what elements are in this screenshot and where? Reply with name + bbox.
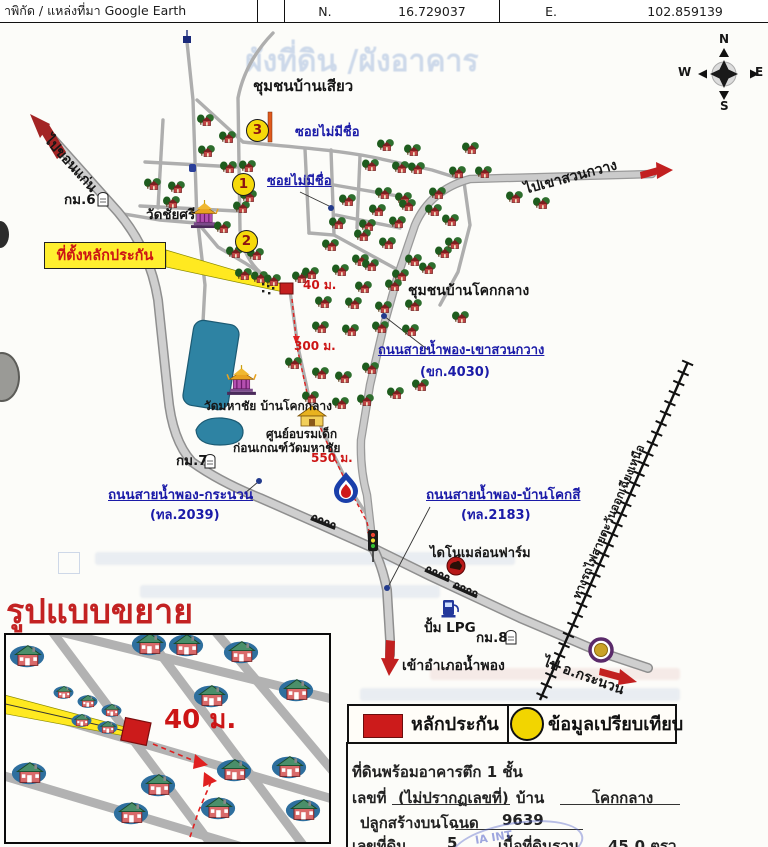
house-icon (412, 379, 429, 390)
underline (560, 804, 680, 805)
house-icon (201, 798, 235, 820)
road-2039-label: ถนนสายน้ำพอง-กระนวน (108, 488, 253, 502)
road-2039-number: (ทล.2039) (150, 509, 220, 523)
house-icon (332, 397, 349, 408)
house-icon (362, 259, 379, 270)
header-e-cell: E. 102.859139 (500, 0, 768, 22)
soi-unnamed-2-label: ซอยไม่มีชื่อ (267, 175, 332, 189)
header-source-label: าพิกัด / แหล่งที่มา Google Earth (4, 1, 186, 21)
house-icon (335, 371, 352, 382)
house-icon (442, 214, 459, 225)
header-source-cell: าพิกัด / แหล่งที่มา Google Earth (0, 0, 258, 22)
property-village-label: บ้าน (516, 786, 544, 810)
distance-550m-label: 550 ม. (311, 452, 353, 465)
child-center-label-1: ศูนย์อบรมเด็ก (266, 428, 337, 441)
house-icon (54, 686, 74, 699)
railway (540, 362, 688, 700)
compass-e-label: E (755, 66, 763, 79)
house-icon (408, 162, 425, 173)
soi-unnamed-1-label: ซอยไม่มีชื่อ (295, 126, 360, 140)
road-2183-number: (ทล.2183) (461, 509, 531, 523)
house-icon (220, 161, 237, 172)
house-icon (239, 160, 256, 171)
house-icon (102, 704, 122, 717)
banner-callout-wedge (166, 250, 288, 293)
property-deed-label: ปลูกสร้างบนโฉนด (360, 811, 479, 835)
underline (392, 804, 510, 805)
house-icon (10, 646, 44, 668)
house-icon (462, 142, 479, 153)
house-icon (224, 642, 258, 664)
house-icon (419, 262, 436, 273)
comparison-marker-1: 1 (232, 173, 255, 196)
house-icon (141, 775, 175, 797)
collateral-location-banner: ที่ตั้งหลักประกัน (44, 242, 166, 269)
house-icon (452, 311, 469, 322)
inset-title: รูปแบบขยาย (6, 594, 193, 630)
water-jar-icon (189, 164, 196, 172)
lpg-pump-icon (442, 600, 459, 618)
house-icon (312, 321, 329, 332)
inset-roads (6, 635, 331, 844)
km-marker-icon (98, 193, 108, 207)
house-icon (379, 237, 396, 248)
property-land-label: เลขที่ดิน (352, 834, 406, 847)
house-icon (168, 181, 185, 192)
road-4030-label: ถนนสายน้ำพอง-เขาสวนกวาง (378, 344, 544, 358)
house-icon (322, 239, 339, 250)
compass-s-label: S (720, 100, 729, 113)
wat-mahachai-label: วัดมหาชัย บ้านโคกกลาง (204, 400, 332, 413)
road-2183-label: ถนนสายน้ำพอง-บ้านโคกสี (426, 488, 580, 502)
wat-chai-si-label: วัดชัยศรี (146, 208, 195, 222)
house-icon (315, 296, 332, 307)
emblem-icon (590, 639, 612, 661)
house-icon (312, 367, 329, 378)
legend-comparison-swatch (510, 707, 544, 741)
coordinates-header: าพิกัด / แหล่งที่มา Google Earth N. 16.7… (0, 0, 768, 23)
gas-station-icon (334, 472, 358, 503)
header-e-label: E. (545, 4, 557, 19)
distance-300m-label: 300 ม. (294, 340, 336, 353)
house-icon (219, 131, 236, 142)
compass-n-label: N (719, 33, 729, 46)
legend-collateral-swatch (363, 714, 403, 738)
house-icon (114, 803, 148, 825)
house-icon (362, 159, 379, 170)
house-icon (377, 139, 394, 150)
km8-label: กม.8 (476, 631, 508, 645)
property-type: ที่ดินพร้อมอาคารตึก 1 ชั้น (352, 760, 523, 784)
house-icon (387, 387, 404, 398)
house-icon (169, 635, 203, 656)
house-icon (375, 187, 392, 198)
house-icon (217, 760, 251, 782)
house-icon (98, 721, 118, 734)
header-n-label: N. (318, 4, 331, 19)
compass-w-label: W (678, 66, 691, 79)
inset-enlarged-map: 40 ม. (4, 633, 331, 844)
header-e-value: 102.859139 (647, 4, 723, 19)
property-village-value: โคกกลาง (592, 786, 653, 810)
arrow-nam-phong (381, 658, 399, 676)
km7-label: กม.7 (176, 454, 208, 468)
house-icon (272, 757, 306, 779)
arrow-nam-phong-shaft (385, 640, 395, 660)
km6-label: กม.6 (64, 193, 96, 207)
house-icon (286, 800, 320, 822)
legend-comparison-label: ข้อมูลเปรียบเทียบ (548, 715, 683, 734)
house-icon (332, 264, 349, 275)
lpg-label: ปั้ม LPG (424, 621, 476, 635)
property-area-value: 45.0 ตรว. (608, 834, 682, 847)
house-icon (285, 357, 302, 368)
inset-distance-40m-label: 40 ม. (164, 707, 236, 735)
house-icon (72, 714, 92, 727)
property-no-value: (ไม่ปรากฏเลขที่) (398, 786, 509, 810)
header-spacer-cell (258, 0, 285, 22)
house-icon (405, 254, 422, 265)
house-icon (197, 114, 214, 125)
house-icon (405, 299, 422, 310)
house-icon (533, 197, 550, 208)
inset-collateral-square (121, 718, 151, 746)
house-icon (342, 324, 359, 335)
house-icon (404, 144, 421, 155)
house-icon (194, 686, 228, 708)
inset-canvas (6, 635, 331, 844)
scanned-map-page: ผังที่ดิน /ผังอาคาร (0, 0, 768, 847)
arrow-suan-kwang (656, 162, 673, 179)
road-4030-number: (ขก.4030) (420, 366, 490, 380)
comparison-marker-3: 3 (246, 119, 269, 142)
house-icon (369, 204, 386, 215)
water-tank-icon (183, 30, 191, 43)
dino-farm-label: ไดโนเมล่อนฟาร์ม (430, 547, 531, 561)
direction-nam-phong-label: เข้าอำเภอน้ำพอง (402, 659, 505, 674)
house-icon (198, 145, 215, 156)
house-icon (12, 763, 46, 785)
comparison-marker-2: 2 (235, 230, 258, 253)
house-icon (78, 695, 98, 708)
house-icon (435, 246, 452, 257)
house-icon (329, 217, 346, 228)
house-icon (425, 204, 442, 215)
house-icon (345, 297, 362, 308)
legend-divider (507, 706, 509, 742)
legend-collateral-label: หลักประกัน (411, 715, 499, 734)
house-icon (402, 324, 419, 335)
distance-40m-label: 40 ม. (303, 279, 336, 292)
house-icon (355, 281, 372, 292)
house-icon (339, 194, 356, 205)
house-icon (354, 229, 371, 240)
community-ban-siao-label: ชุมชนบ้านเสียว (253, 79, 353, 95)
house-icon (214, 221, 231, 232)
header-n-cell: N. 16.729037 (285, 0, 500, 22)
compass-rose (698, 48, 759, 100)
legend-box: หลักประกัน ข้อมูลเปรียบเทียบ (347, 704, 677, 744)
property-no-label: เลขที่ (352, 786, 386, 810)
table-left-border (346, 742, 348, 847)
community-khok-klang-label: ชุมชนบ้านโคกกลาง (408, 284, 529, 299)
header-n-value: 16.729037 (398, 4, 466, 19)
house-icon (279, 680, 313, 702)
house-icon (506, 191, 523, 202)
